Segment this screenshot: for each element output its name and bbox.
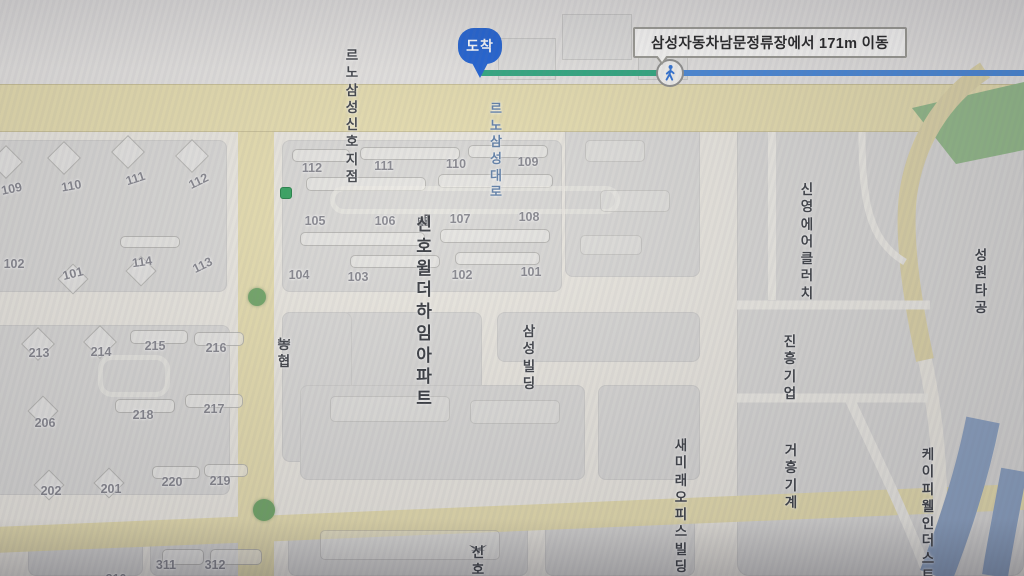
label-text: 케이피웰 인더스트리 [922,446,934,576]
road-loop [330,186,620,214]
label-text: 르노삼성 신호지점 [346,47,358,185]
label-text: 219 [210,473,231,489]
label-text: 311 [156,557,176,573]
building-footprint [120,236,180,248]
label-text: 114 [131,253,153,272]
label-text: 신영에어 클러치 [801,181,813,302]
building-footprint [580,235,642,255]
tooltip-pointer [657,55,667,62]
pin-head: 도착 [458,28,502,64]
map-canvas[interactable]: 도착 삼성자동차남문정류장에서 171m 이동 르노삼성 신호지점르노삼성대로신… [0,0,1024,576]
label-text: 농협 [278,336,290,371]
label-text: 르노삼성대로 [490,101,502,201]
label-text: 220 [162,474,183,490]
label-text: 310 [106,571,127,576]
label-text: 107 [450,211,471,227]
label-text: 거흥기계 [785,442,797,511]
label-text: 105 [305,213,326,229]
route-tooltip-text: 삼성자동차남문정류장에서 171m 이동 [651,32,889,53]
label-text: 새미래 오피스빌딩 [675,437,687,575]
road-minor-diagonal [850,400,928,576]
building-footprint [600,190,670,212]
label-text: 216 [206,340,227,356]
label-text: 104 [289,267,310,283]
store-icon [280,187,292,199]
label-text: 312 [205,557,226,573]
building-footprint [330,396,450,422]
tree-icon [253,499,275,521]
label-text: 신호119 안전센터 [467,544,489,576]
label-text: 102 [452,267,473,283]
road-loop [98,355,170,397]
route-walking-segment [479,70,661,76]
label-text: 206 [35,415,56,431]
label-text: 진흥기업 [784,333,796,402]
route-tooltip[interactable]: 삼성자동차남문정류장에서 171m 이동 [633,27,907,58]
label-text: 103 [348,269,369,285]
label-text: 102 [4,256,25,272]
label-text: 106 [375,213,396,229]
label-text: 신호윌더하임 아파트 [416,214,432,410]
building-footprint [440,229,550,243]
terrain-overlay [0,0,1024,576]
label-text: 108 [519,209,540,225]
label-text: 111 [374,158,393,174]
label-text: 110 [446,156,466,172]
river-branch [995,470,1014,576]
tree-icon [248,288,266,306]
building-footprint [300,232,425,246]
label-text: 218 [133,407,154,423]
label-text: 215 [145,338,166,354]
building-footprint [470,400,560,424]
building-footprint [585,140,645,162]
label-text: 101 [521,264,542,280]
label-text: 삼성빌딩 [523,323,535,392]
label-text: 201 [101,481,122,497]
label-text: 214 [91,344,112,360]
label-text: 217 [204,401,225,417]
label-text: 213 [29,345,50,361]
label-text: 202 [41,483,62,499]
destination-pin-icon[interactable]: 도착 [458,28,502,80]
label-text: 성원타공 [975,247,987,316]
destination-pin-label: 도착 [466,36,494,56]
route-transit-segment [681,70,1024,76]
label-text: 112 [302,160,322,176]
label-text: 109 [518,154,539,170]
